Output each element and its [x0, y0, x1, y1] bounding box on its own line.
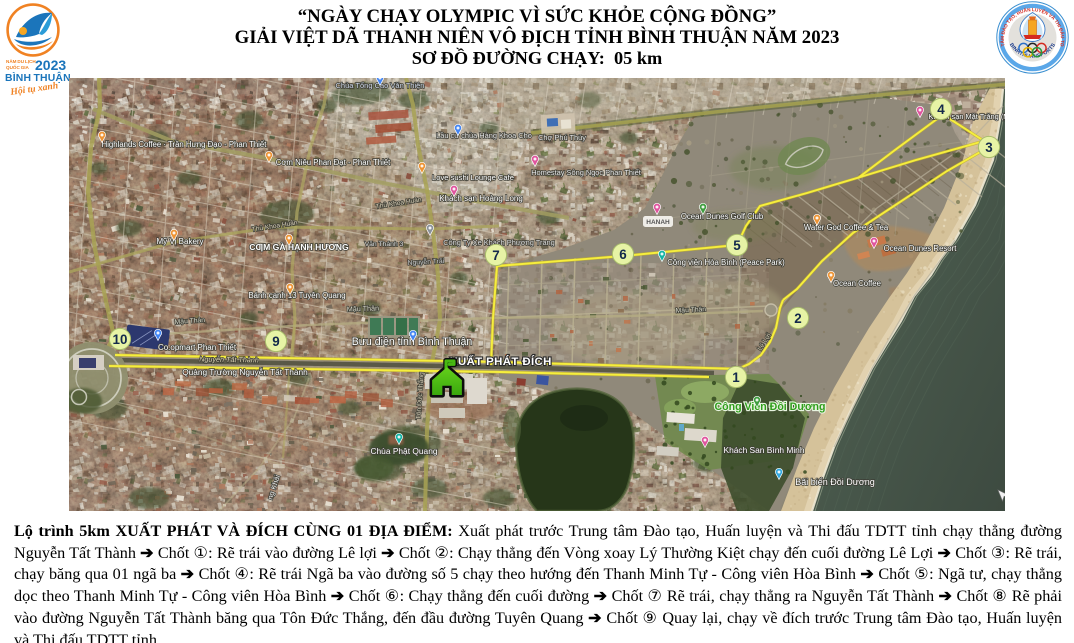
- svg-text:Công viên Hòa Bình (Peace Park: Công viên Hòa Bình (Peace Park): [667, 258, 785, 267]
- svg-text:QUỐC GIA: QUỐC GIA: [6, 64, 30, 70]
- svg-text:Highlands Coffee · Trần Hưng Đ: Highlands Coffee · Trần Hưng Đạo - Phan …: [102, 140, 268, 149]
- svg-text:Mỹ Vị Bakery: Mỹ Vị Bakery: [156, 237, 203, 246]
- svg-text:Khách sạn Hoàng Long: Khách sạn Hoàng Long: [439, 194, 523, 203]
- svg-text:7: 7: [492, 248, 499, 263]
- svg-text:2023: 2023: [35, 57, 66, 73]
- svg-text:Ocean Coffee: Ocean Coffee: [833, 279, 881, 288]
- svg-text:HANAH: HANAH: [646, 219, 670, 226]
- svg-text:CƢM GÀ HẠNH HƯƠNG: CƢM GÀ HẠNH HƯƠNG: [249, 242, 349, 252]
- svg-text:Quảng Trường Nguyễn Tất Thành: Quảng Trường Nguyễn Tất Thành: [182, 367, 308, 377]
- svg-text:Mậu Thân: Mậu Thân: [347, 303, 380, 313]
- svg-text:2: 2: [794, 311, 801, 326]
- svg-text:Bãi biển Đồi Dương: Bãi biển Đồi Dương: [795, 477, 874, 487]
- svg-text:Công Viên Đồi Dương: Công Viên Đồi Dương: [715, 401, 826, 413]
- svg-text:Bánh canh 13 Tuyên Quang: Bánh canh 13 Tuyên Quang: [248, 291, 345, 300]
- svg-text:6: 6: [619, 247, 626, 262]
- svg-text:Khách San Bình Minh: Khách San Bình Minh: [723, 445, 804, 455]
- svg-text:Lầu cư chùa Hàng Khoa Cho: Lầu cư chùa Hàng Khoa Cho: [436, 131, 532, 140]
- svg-text:Love sushi Lounge Cafe: Love sushi Lounge Cafe: [432, 173, 514, 182]
- svg-text:4: 4: [937, 102, 945, 117]
- svg-text:Văn Thánh 3: Văn Thánh 3: [365, 241, 404, 248]
- svg-text:1: 1: [732, 370, 740, 385]
- svg-text:Nguyễn Tất Thành: Nguyễn Tất Thành: [199, 354, 259, 364]
- svg-text:10: 10: [113, 332, 128, 347]
- svg-text:Cơm Niêu Phan Đạt - Phan Thiết: Cơm Niêu Phan Đạt - Phan Thiết: [276, 158, 391, 167]
- svg-text:Ocean Dunes Resort: Ocean Dunes Resort: [884, 244, 958, 253]
- svg-text:NĂM DU LỊCH: NĂM DU LỊCH: [6, 58, 36, 64]
- svg-text:Co.opmart Phan Thiết: Co.opmart Phan Thiết: [158, 343, 237, 352]
- svg-text:9: 9: [272, 334, 279, 349]
- svg-text:Chợ Phú Thủy: Chợ Phú Thủy: [538, 133, 586, 142]
- svg-text:XUẤT PHÁT ĐÍCH: XUẤT PHÁT ĐÍCH: [450, 355, 552, 368]
- svg-text:5: 5: [733, 238, 741, 253]
- svg-text:Homestay Sông Ngọc Phan Thiết: Homestay Sông Ngọc Phan Thiết: [531, 168, 641, 177]
- svg-text:Chùa Phật Quang: Chùa Phật Quang: [370, 446, 437, 456]
- svg-text:Ocean Dunes Golf Club: Ocean Dunes Golf Club: [681, 212, 764, 221]
- svg-text:3: 3: [985, 140, 992, 155]
